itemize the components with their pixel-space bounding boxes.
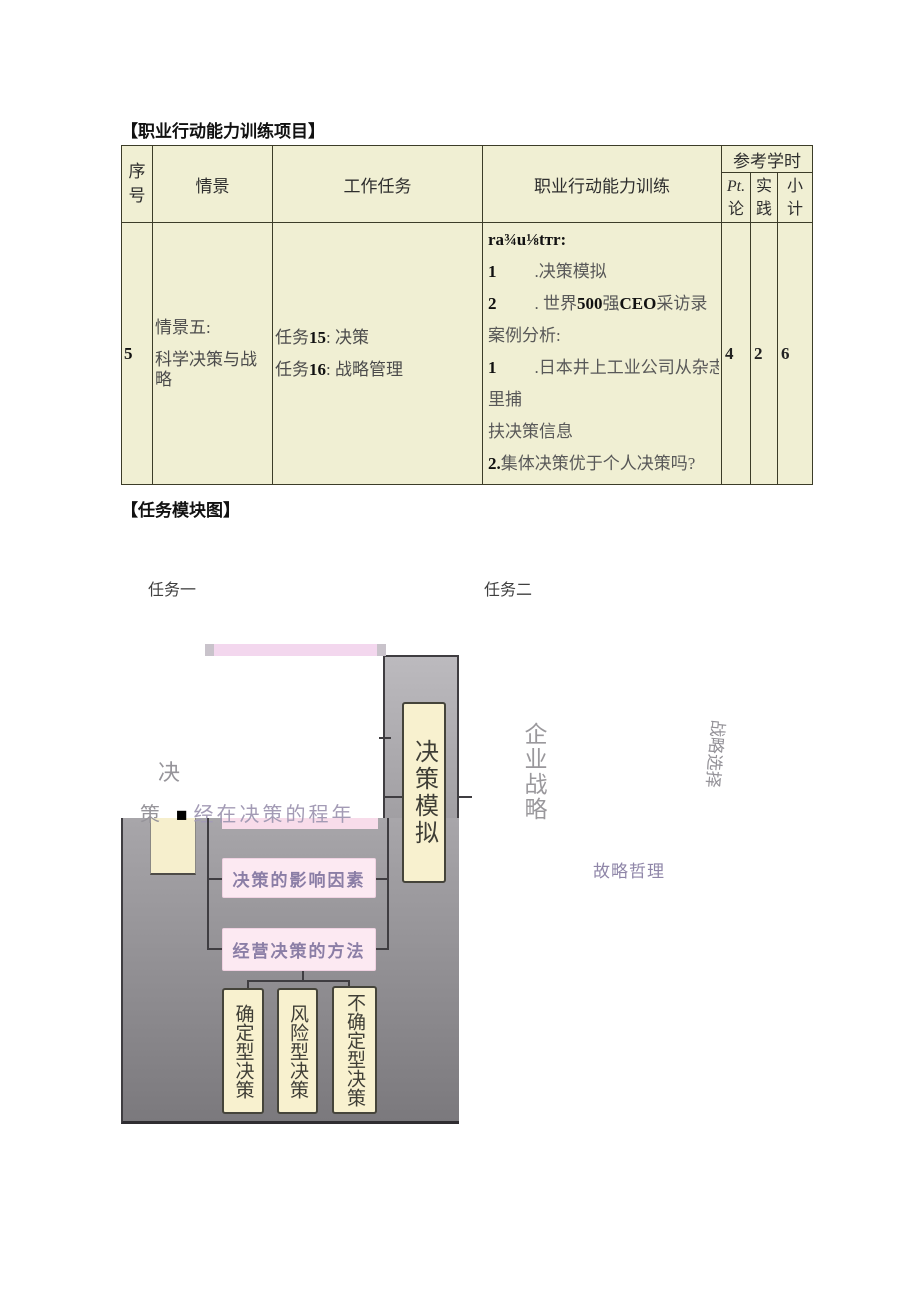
table-row: 5 情景五: 科学决策与战略 任务15: 决策 任务16: 战略管理 (122, 223, 813, 485)
split-horizontal-line (247, 980, 350, 982)
overlay-text-ce: 策 (140, 804, 160, 826)
cell-hours-total: 6 (778, 223, 813, 485)
connector-left-of-sim-box (383, 796, 402, 798)
cell-scene: 情景五: 科学决策与战略 (153, 223, 273, 485)
cell-tasks: 任务15: 决策 任务16: 战略管理 (273, 223, 483, 485)
section-title-task-module: 【任务模块图】 (121, 496, 240, 521)
task-16: 任务16: 战略管理 (275, 360, 480, 380)
overlay-text-rest: 经在决策的程年 (193, 804, 354, 826)
bracket-left-stub-influence (207, 878, 222, 880)
decision-influence-factors-box: 决策的影响因素 (222, 858, 376, 898)
enterprise-strategy-label: 企业战略 (516, 722, 550, 826)
bracket-left-stub-methods (207, 948, 222, 950)
hidden-pink-box-top-strip (205, 644, 386, 656)
cell-hours-practice: 2 (751, 223, 778, 485)
bracket-right-stub-methods (376, 948, 389, 950)
header-scene: 情景 (153, 146, 273, 223)
strategy-choice-label: 战略选择 (701, 719, 733, 801)
black-square-glyph: ■ (160, 805, 193, 826)
certain-decision-box: 确定型决策 (222, 988, 264, 1114)
training-line-case-analysis: 案例分析: (488, 325, 717, 346)
tick-line (379, 737, 391, 739)
uncertain-decision-box: 不确定型决策 (332, 986, 377, 1114)
task-15: 任务15: 决策 (275, 328, 480, 348)
header-practice: 实 践 (751, 173, 778, 223)
scene-line-1: 情景五: (155, 318, 270, 338)
training-line-2: 2. 世界500强CEO采访录 (488, 293, 717, 314)
bracket-right-line (387, 818, 389, 950)
section-title-training-projects: 【职业行动能力训练项目】 (121, 117, 325, 142)
decision-simulation-box: 决策模拟 (402, 702, 446, 883)
header-no: 序 号 (122, 146, 153, 223)
decision-methods-box: 经营决策的方法 (222, 928, 376, 971)
connector-to-task-two (458, 796, 472, 798)
training-project-table: 序 号 情景 工作任务 职业行动能力训练 参考学时 Pt. 论 实 践 小 (121, 145, 813, 485)
task-two-label: 任务二 (484, 576, 532, 600)
training-line-1: 1.决策模拟 (488, 261, 717, 282)
strategy-philosophy-label: 故略哲理 (593, 857, 665, 882)
cell-row-number: 5 (122, 223, 153, 485)
training-line-wrap: 里捕 (488, 389, 717, 410)
training-line-4: 扶决策信息 (488, 421, 717, 442)
risk-decision-box: 风险型决策 (277, 988, 318, 1114)
training-line-5: 2.集体决策优于个人决策吗? (488, 453, 717, 474)
header-hours: 参考学时 (722, 146, 813, 173)
header-subtotal: 小 计 (778, 173, 813, 223)
overlay-text-jue: 决 (158, 755, 180, 787)
task-one-label: 任务一 (148, 576, 196, 600)
training-line-garbled: ra¾u⅛tтr: (488, 229, 717, 250)
bracket-left-line (207, 818, 209, 950)
document-page: 【职业行动能力训练项目】 序 号 情景 工作任务 职业行动能力训练 参考学时 P… (0, 0, 920, 1301)
cell-training-content: ra¾u⅛tтr: 1.决策模拟 2. 世界500强CEO采访录 案例分析: 1… (483, 223, 722, 485)
bracket-right-stub-influence (376, 878, 389, 880)
header-task: 工作任务 (273, 146, 483, 223)
header-theory: Pt. 论 (722, 173, 751, 223)
cell-hours-theory: 4 (722, 223, 751, 485)
scene-line-2: 科学决策与战略 (155, 350, 270, 390)
overlay-text-line: 策■经在决策的程年 (140, 798, 354, 827)
header-training: 职业行动能力训练 (483, 146, 722, 223)
training-line-3: 1.日本井上工业公司从杂志 (488, 357, 717, 378)
